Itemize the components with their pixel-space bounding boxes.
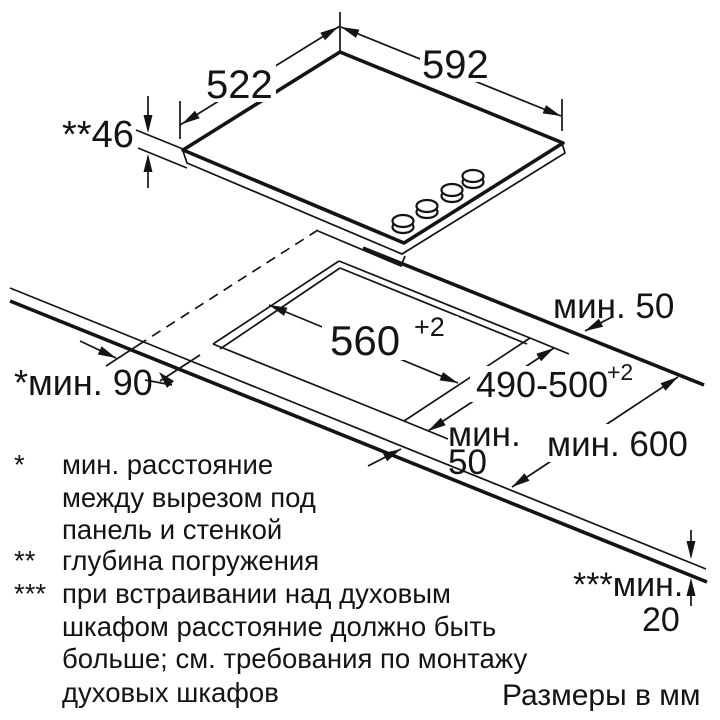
min-wall-label: *мин. 90 (14, 362, 153, 403)
cutout-depth-tolerance: +2 (607, 359, 633, 385)
footnote-1-line-2: между вырезом под (62, 482, 316, 513)
min-oven-gap-value: 20 (642, 601, 680, 639)
footnote-1-line-1: мин. расстояние (62, 449, 273, 480)
dim-immersion-depth: **46 (62, 96, 187, 188)
footnote-2-marker: ** (14, 545, 36, 576)
footnotes: * мин. расстояние между вырезом под пане… (14, 449, 527, 708)
cutout-width-label: 560 (330, 317, 400, 364)
min-front-upper-label: мин. 50 (553, 287, 674, 326)
hob-installation-diagram: 560 +2 490-500 +2 мин. 50 мин. 50 мин. 6… (0, 0, 720, 720)
footnote-3-line-2: шкафом расстояние должно быть (62, 611, 496, 642)
dim-min-front-upper: мин. 50 (553, 287, 674, 331)
installation-diagram-page: 560 +2 490-500 +2 мин. 50 мин. 50 мин. 6… (0, 0, 720, 720)
footnote-3-line-3: больше; см. требования по монтажу (62, 643, 527, 674)
footnote-3-line-4: духовых шкафов (62, 677, 279, 708)
footnote-3-line-1: при встраивании над духовым (62, 578, 451, 609)
footnote-1-line-3: панель и стенкой (62, 514, 282, 545)
dim-cutout-width: 560 +2 (269, 305, 458, 383)
min-counter-depth-label: мин. 600 (547, 425, 688, 464)
min-front-lower-label-2: 50 (448, 443, 487, 482)
cutout-depth-label: 490-500 (476, 364, 608, 405)
dim-min-wall: *мин. 90 (14, 341, 174, 403)
units-note: Размеры в мм (502, 679, 701, 712)
cutout-width-tolerance: +2 (414, 312, 445, 342)
dim-min-oven-gap: ***мин. 20 (573, 530, 696, 639)
top-width-left-label: 522 (206, 63, 273, 107)
top-width-right-label: 592 (422, 43, 489, 87)
min-oven-gap-label: ***мин. (573, 566, 683, 604)
projection-line (106, 230, 318, 381)
footnote-1-marker: * (14, 449, 25, 480)
footnote-3-marker: *** (14, 578, 46, 609)
immersion-depth-label: **46 (62, 114, 134, 156)
footnote-2-line-1: глубина погружения (62, 545, 319, 576)
